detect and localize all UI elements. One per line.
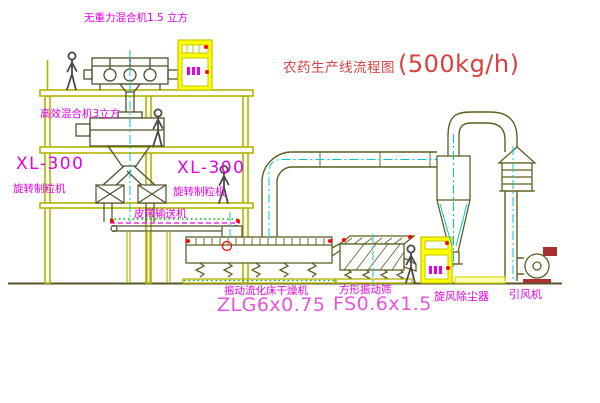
- control-cabinet-1: [178, 40, 212, 90]
- induced-fan-machine: [523, 247, 557, 283]
- foundation-mark: [455, 277, 505, 283]
- stack-pipe: [505, 191, 524, 281]
- square-sieve-machine: [332, 236, 416, 283]
- label-belt-conveyor: 皮带输送机: [134, 209, 187, 220]
- label-xl300-mid: XL-300: [177, 160, 245, 178]
- fluid-bed-dryer-machine: [183, 237, 336, 283]
- title-capacity: (500kg/h): [398, 50, 519, 78]
- control-cabinet-2: [421, 237, 452, 283]
- label-zero-gravity-mixer: 无重力混合机1.5 立方: [84, 13, 188, 24]
- flow-diagram-canvas: 农药生产线流程图 (500kg/h) 无重力混合机1.5 立方 高效混合机3立方…: [0, 0, 600, 403]
- label-cyclone: 旋风除尘器: [434, 291, 489, 303]
- title-text: 农药生产线流程图: [283, 56, 395, 76]
- exhaust-duct: [262, 152, 437, 237]
- label-xl300-left: XL-300: [16, 156, 84, 174]
- page-title: 农药生产线流程图 (500kg/h): [283, 50, 519, 78]
- label-granulator-mid: 旋转制粒机: [173, 187, 226, 198]
- vent-cap: [499, 147, 535, 191]
- label-induced-fan: 引风机: [509, 289, 542, 301]
- worker-roof: [67, 52, 77, 89]
- label-dryer-model: ZLG6x0.75: [217, 296, 325, 316]
- label-granulator-left: 旋转制粒机: [13, 184, 66, 195]
- worker-ground: [406, 245, 416, 282]
- label-high-eff-mixer: 高效混合机3立方: [40, 109, 120, 120]
- label-sieve-model: FS0.6x1.5: [333, 295, 432, 315]
